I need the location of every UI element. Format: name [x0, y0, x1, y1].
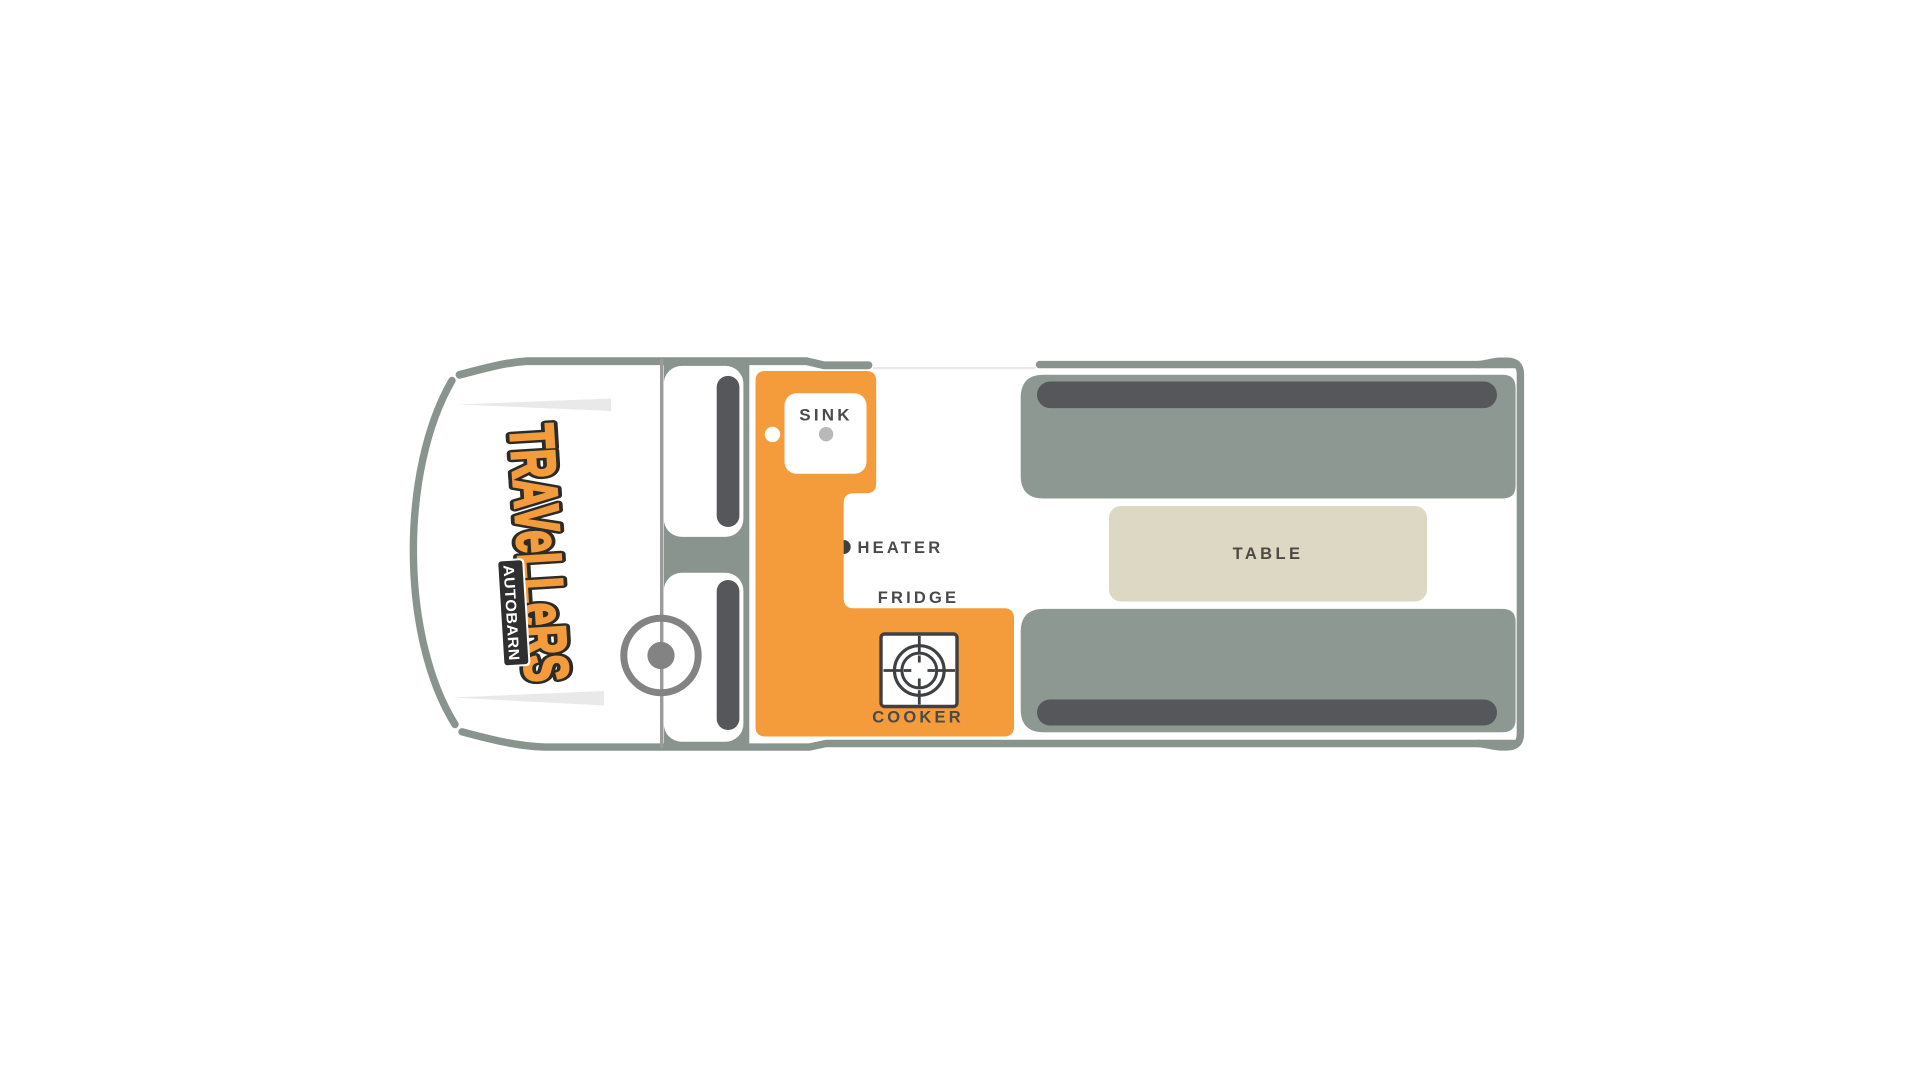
svg-text:COOKER: COOKER: [872, 709, 964, 727]
svg-text:TABLE: TABLE: [1233, 545, 1304, 563]
svg-text:HEATER: HEATER: [858, 539, 944, 557]
svg-text:FRIDGE: FRIDGE: [878, 589, 960, 607]
svg-text:SINK: SINK: [799, 406, 852, 425]
